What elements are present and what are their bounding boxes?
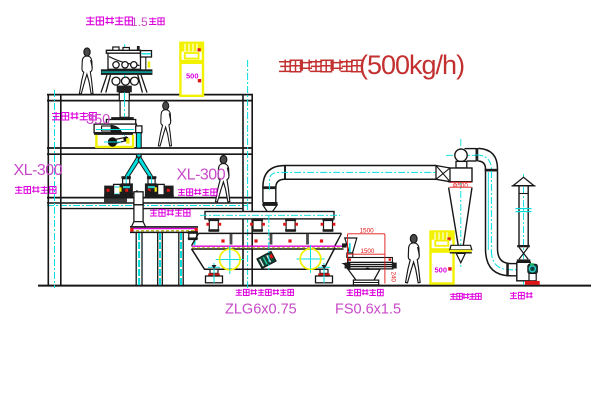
svg-text:1500: 1500 [361, 248, 375, 255]
svg-text:500: 500 [435, 266, 448, 275]
svg-text:XL-300: XL-300 [14, 162, 63, 179]
svg-text:(500kg/h): (500kg/h) [359, 50, 464, 80]
svg-text:Φ500: Φ500 [453, 182, 469, 189]
svg-text:1500: 1500 [360, 228, 375, 235]
svg-text:ZLG6x0.75: ZLG6x0.75 [225, 302, 297, 318]
svg-text:500: 500 [186, 72, 199, 81]
svg-text:1.5: 1.5 [131, 15, 148, 29]
svg-text:240: 240 [390, 272, 397, 283]
svg-text:XL-300: XL-300 [177, 166, 226, 183]
svg-text:FS0.6x1.5: FS0.6x1.5 [335, 302, 401, 318]
svg-text:350: 350 [86, 112, 110, 128]
